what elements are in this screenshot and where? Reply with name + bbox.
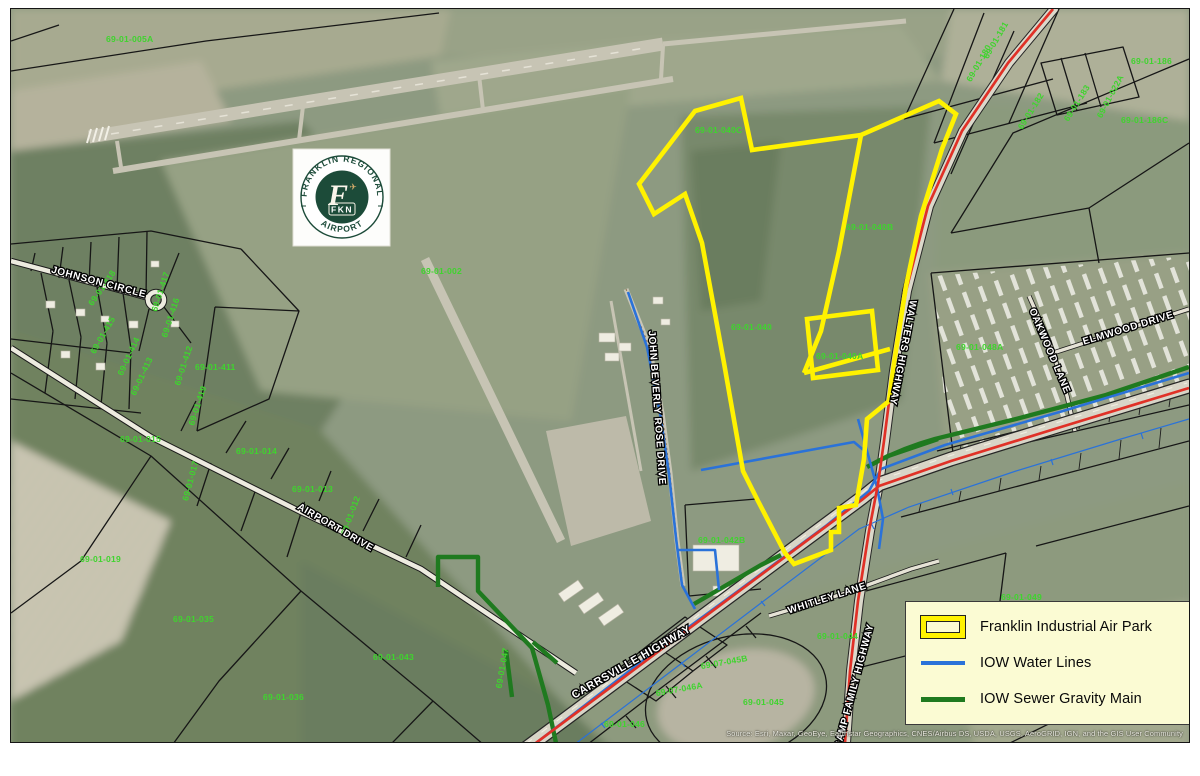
parcel-label: 69-01-040B: [846, 222, 893, 232]
map-frame[interactable]: 69-01-005A 69-01-186 69-01-186C 69-01-00…: [10, 8, 1190, 743]
water-line-swatch: [921, 661, 965, 665]
parcel-label: 69-01-186: [1131, 56, 1172, 66]
water-swatch-cell: [920, 661, 966, 665]
parcel-label: 69-01-186C: [1121, 115, 1168, 125]
parcel-label: 69-01-040A: [816, 351, 863, 361]
parcel-label: 69-01-043: [373, 652, 414, 662]
parcel-label: 69-01-044: [817, 631, 858, 641]
parcel-label: 69-01-013: [292, 484, 333, 494]
sewer-swatch-cell: [920, 697, 966, 702]
parcel-label: 69-01-045: [743, 697, 784, 707]
legend-item-sewer-main: IOW Sewer Gravity Main: [920, 685, 1178, 713]
sewer-line-swatch: [921, 697, 965, 702]
parcel-label: 69-01-040C: [695, 125, 742, 135]
parcel-label: 69-01-005A: [106, 34, 153, 44]
parcel-label: 69-01-002: [421, 266, 462, 276]
legend: Franklin Industrial Air Park IOW Water L…: [905, 601, 1190, 725]
parcel-label: 69-01-019: [80, 554, 121, 564]
logo-code-text: FKN: [331, 205, 353, 215]
parcel-label: 69-01-040: [731, 322, 772, 332]
parcel-label: 69-01-015: [120, 434, 161, 444]
parcel-label: 69-01-046: [604, 719, 645, 729]
legend-label-air-park: Franklin Industrial Air Park: [980, 619, 1152, 635]
map-attribution: Source: Esri, Maxar, GeoEye, Earthstar G…: [726, 729, 1183, 738]
parcel-label: 69-01-042B: [698, 535, 745, 545]
parcel-label: 69-01-014: [236, 446, 277, 456]
park-swatch-cell: [920, 616, 966, 638]
airport-logo: FRANKLIN REGIONAL AIRPORT F ✈ FKN: [293, 149, 390, 246]
parcel-label: 69-01-048A: [956, 342, 1003, 352]
parcel-label: 69-01-036: [263, 692, 304, 702]
legend-label-sewer-main: IOW Sewer Gravity Main: [980, 691, 1142, 707]
plane-icon: ✈: [349, 183, 357, 193]
park-outline-swatch: [921, 616, 965, 638]
map-page: 69-01-005A 69-01-186 69-01-186C 69-01-00…: [0, 0, 1200, 776]
parcel-label: 69-01-035: [173, 614, 214, 624]
legend-label-water-lines: IOW Water Lines: [980, 655, 1091, 671]
parcel-label: 69-01-411: [195, 362, 236, 372]
legend-item-air-park: Franklin Industrial Air Park: [920, 613, 1178, 641]
legend-item-water-lines: IOW Water Lines: [920, 649, 1178, 677]
